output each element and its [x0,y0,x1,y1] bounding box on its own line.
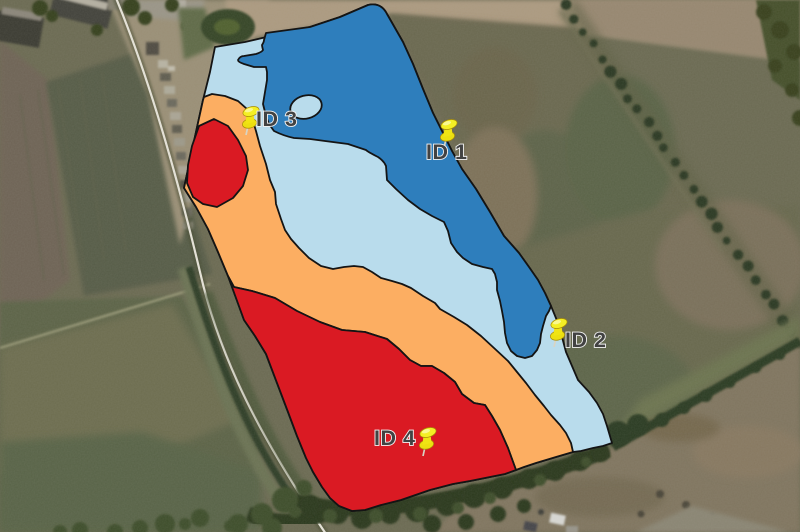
svg-text:ID 2: ID 2 [565,328,606,352]
svg-text:ID 4: ID 4 [374,426,415,450]
svg-text:ID 1: ID 1 [426,140,467,164]
svg-text:ID 3: ID 3 [256,107,297,131]
